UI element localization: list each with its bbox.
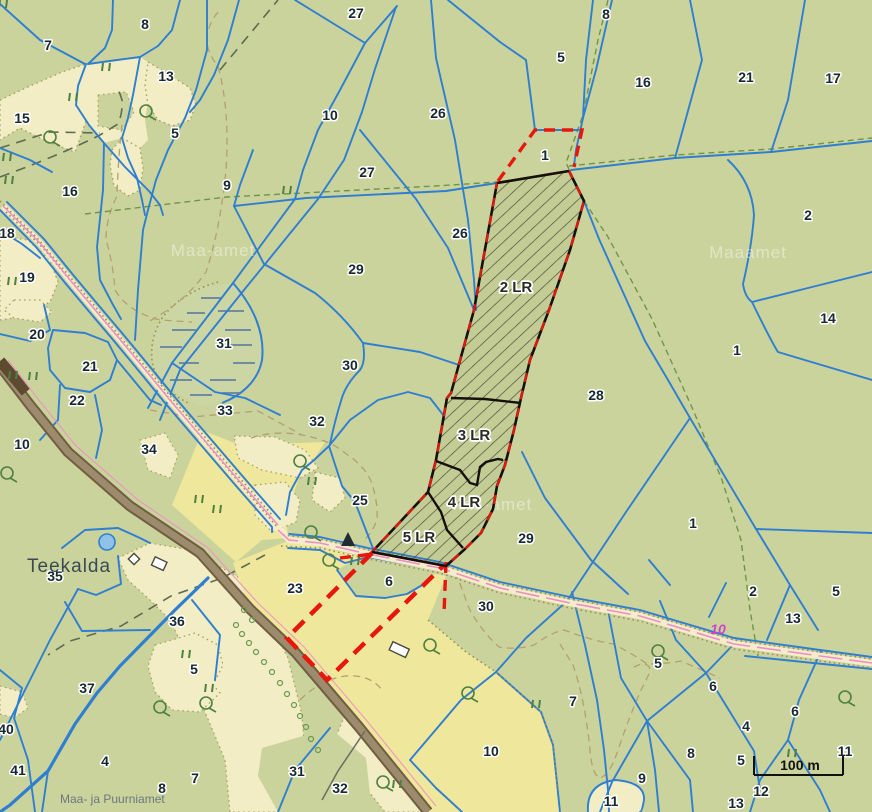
svg-text:Teekalda: Teekalda bbox=[27, 556, 111, 577]
svg-text:8: 8 bbox=[602, 6, 610, 22]
svg-text:6: 6 bbox=[709, 678, 717, 694]
svg-text:36: 36 bbox=[169, 613, 185, 629]
svg-text:7: 7 bbox=[44, 37, 52, 53]
svg-text:10: 10 bbox=[483, 743, 499, 759]
svg-text:9: 9 bbox=[638, 770, 646, 786]
svg-text:Maa- ja Puurniamet: Maa- ja Puurniamet bbox=[60, 792, 165, 806]
svg-text:30: 30 bbox=[342, 357, 358, 373]
svg-text:2: 2 bbox=[749, 583, 757, 599]
svg-text:30: 30 bbox=[478, 598, 494, 614]
svg-text:100 m: 100 m bbox=[780, 757, 820, 773]
svg-text:19: 19 bbox=[19, 269, 35, 285]
svg-text:15: 15 bbox=[14, 110, 30, 126]
svg-text:8: 8 bbox=[687, 745, 695, 761]
svg-text:7: 7 bbox=[191, 770, 199, 786]
svg-text:33: 33 bbox=[217, 402, 233, 418]
svg-text:13: 13 bbox=[158, 68, 174, 84]
svg-text:26: 26 bbox=[430, 105, 446, 121]
svg-text:16: 16 bbox=[62, 183, 78, 199]
svg-text:1: 1 bbox=[689, 515, 697, 531]
svg-text:5: 5 bbox=[171, 125, 179, 141]
svg-text:5: 5 bbox=[654, 655, 662, 671]
svg-text:4 LR: 4 LR bbox=[448, 494, 481, 511]
svg-text:5: 5 bbox=[557, 49, 565, 65]
svg-text:10: 10 bbox=[710, 621, 726, 637]
svg-text:23: 23 bbox=[287, 580, 303, 596]
svg-text:5: 5 bbox=[737, 752, 745, 768]
svg-text:5: 5 bbox=[832, 583, 840, 599]
svg-text:5 LR: 5 LR bbox=[403, 529, 436, 546]
svg-text:21: 21 bbox=[738, 69, 754, 85]
svg-text:32: 32 bbox=[332, 780, 348, 796]
svg-text:2 LR: 2 LR bbox=[500, 279, 533, 296]
svg-text:1: 1 bbox=[541, 147, 549, 163]
svg-text:9: 9 bbox=[223, 177, 231, 193]
svg-text:12: 12 bbox=[753, 783, 769, 799]
svg-text:Maaamet: Maaamet bbox=[709, 243, 787, 262]
svg-text:6: 6 bbox=[791, 703, 799, 719]
svg-text:37: 37 bbox=[79, 680, 95, 696]
svg-text:1: 1 bbox=[733, 342, 741, 358]
svg-text:13: 13 bbox=[728, 795, 744, 811]
svg-text:21: 21 bbox=[82, 358, 98, 374]
svg-text:16: 16 bbox=[635, 74, 651, 90]
svg-text:5: 5 bbox=[190, 661, 198, 677]
svg-text:18: 18 bbox=[0, 225, 15, 241]
svg-text:29: 29 bbox=[518, 530, 534, 546]
svg-text:25: 25 bbox=[352, 492, 368, 508]
svg-text:2: 2 bbox=[804, 207, 812, 223]
svg-text:28: 28 bbox=[588, 387, 604, 403]
svg-text:11: 11 bbox=[838, 743, 853, 759]
svg-text:4: 4 bbox=[742, 718, 750, 734]
svg-text:4: 4 bbox=[101, 753, 109, 769]
svg-text:11: 11 bbox=[604, 793, 619, 809]
svg-text:26: 26 bbox=[452, 225, 468, 241]
svg-text:7: 7 bbox=[569, 693, 577, 709]
svg-text:31: 31 bbox=[289, 763, 305, 779]
svg-text:22: 22 bbox=[69, 392, 85, 408]
svg-text:3 LR: 3 LR bbox=[458, 427, 491, 444]
svg-text:10: 10 bbox=[322, 107, 338, 123]
svg-text:14: 14 bbox=[820, 310, 836, 326]
svg-text:29: 29 bbox=[348, 261, 364, 277]
svg-text:27: 27 bbox=[359, 164, 375, 180]
svg-text:40: 40 bbox=[0, 721, 14, 737]
svg-text:6: 6 bbox=[385, 573, 393, 589]
svg-text:20: 20 bbox=[29, 326, 45, 342]
svg-text:31: 31 bbox=[216, 335, 232, 351]
svg-text:34: 34 bbox=[141, 441, 157, 457]
svg-text:Maa-amet: Maa-amet bbox=[171, 241, 256, 260]
svg-text:32: 32 bbox=[309, 413, 325, 429]
svg-text:8: 8 bbox=[141, 16, 149, 32]
svg-text:17: 17 bbox=[825, 70, 841, 86]
svg-text:27: 27 bbox=[348, 5, 364, 21]
svg-text:10: 10 bbox=[14, 436, 30, 452]
svg-text:13: 13 bbox=[785, 610, 801, 626]
svg-text:41: 41 bbox=[10, 762, 26, 778]
